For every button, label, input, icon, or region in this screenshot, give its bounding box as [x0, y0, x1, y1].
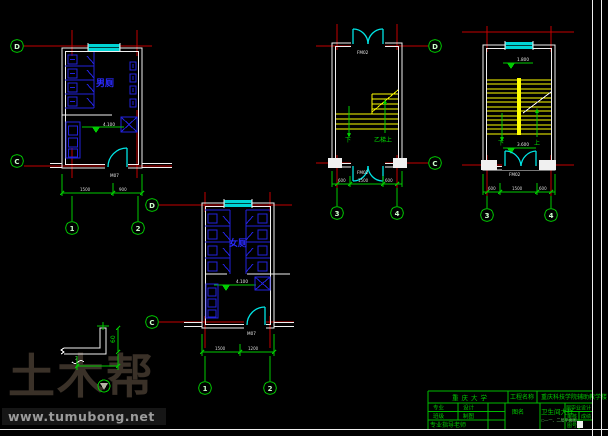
level-value: 4.100	[236, 279, 248, 284]
svg-text:3: 3	[335, 210, 340, 218]
dim-value: 600	[539, 186, 547, 191]
dim-value: 1500	[215, 346, 226, 351]
dimension-lines: 1500 900	[60, 174, 144, 221]
level-value: 1.800	[517, 57, 529, 62]
up-label: 乙梯上	[374, 136, 392, 144]
svg-text:4: 4	[395, 210, 400, 218]
axis-bubble-3: 3	[481, 209, 494, 222]
stair-treads	[336, 90, 398, 129]
pilaster	[481, 160, 497, 170]
drawing-label: 图名	[512, 408, 524, 416]
dimension-lines: 600 1500 600	[483, 174, 555, 208]
squat-toilet-icon	[258, 230, 267, 239]
pilaster	[328, 158, 342, 168]
axis-bubble-2: 2	[264, 382, 277, 395]
right-top-cell: 届毕业设计	[566, 405, 591, 412]
door-bottom-label: FM02	[357, 170, 369, 175]
grid-lines-red	[316, 24, 428, 206]
break-mark	[61, 348, 64, 354]
svg-text:2: 2	[268, 385, 273, 393]
basin-icon	[208, 299, 216, 307]
squat-toilet-icon	[208, 214, 217, 223]
axis-bubble-3: 3	[331, 207, 344, 220]
field-class: 班级	[433, 412, 445, 420]
squat-toilet-icon	[208, 230, 217, 239]
door-bottom-label: FM02	[509, 172, 521, 177]
right-mid-cell-2: 成绩	[581, 413, 591, 420]
dimension-lines: 600 1500 600	[332, 171, 402, 206]
mop-pool-icon	[255, 277, 270, 290]
level-value: 4.100	[103, 122, 115, 127]
drawing-svg: 4.100 男厕 M07 1500 900	[0, 0, 608, 436]
level-marker: 4.100	[82, 122, 124, 133]
field-draft: 制图	[463, 412, 475, 420]
dimension-lines: 1500 1200	[200, 334, 276, 381]
door-label: M07	[247, 331, 256, 336]
squat-toilet-icon	[258, 246, 267, 255]
axis-bubble-2: 2	[132, 222, 145, 235]
grid-lines-red	[24, 30, 172, 178]
level-marker-top: 1.800	[503, 57, 533, 69]
plan-male-toilet: 4.100 男厕 M07 1500 900	[11, 30, 172, 234]
sheet-frame	[0, 0, 608, 436]
toilet-stalls-right	[246, 210, 270, 274]
up-label: 上	[534, 139, 540, 147]
down-label: 下	[498, 140, 504, 147]
basin-icon	[208, 288, 216, 296]
cursor-block	[577, 421, 583, 428]
axis-bubble-d: D	[429, 40, 442, 53]
dim-value: 1500	[80, 187, 91, 192]
svg-text:1: 1	[70, 225, 75, 233]
elevation-marker	[98, 380, 110, 392]
axis-bubble-1: 1	[66, 222, 79, 235]
wash-basins	[66, 122, 80, 158]
mop-pool-icon	[121, 117, 137, 132]
squat-toilet-icon	[208, 246, 217, 255]
field-design: 设计	[463, 404, 475, 412]
svg-text:C: C	[149, 319, 154, 327]
basin-icon	[69, 138, 78, 147]
right-mid-cell-1: 审核	[567, 413, 577, 420]
field-major: 专业	[433, 404, 445, 412]
plan-stair-mid: 下 乙梯上 FM02 FM02	[316, 24, 441, 219]
room-label: 女厕	[229, 237, 247, 249]
dim-value: 1500	[512, 186, 523, 191]
door-top-label: FM02	[357, 50, 369, 55]
detail-dimensions: 60	[75, 322, 120, 370]
school-name: 重庆大学	[452, 393, 490, 402]
squiggle	[72, 361, 84, 364]
door-label: M07	[110, 173, 119, 178]
svg-text:3: 3	[485, 212, 490, 220]
svg-text:4: 4	[549, 212, 554, 220]
walls	[184, 203, 294, 329]
svg-text:D: D	[14, 43, 20, 51]
dim-value: 1500	[358, 178, 369, 183]
svg-text:C: C	[432, 160, 437, 168]
right-bottom-cell: 图号	[567, 423, 577, 429]
dim-value: 600	[488, 186, 496, 191]
basin-icon	[69, 149, 78, 157]
title-block: 重庆大学 工程名称 重庆科技学院辅助教学楼 专业 设计 班级 制图 专业指导老师…	[428, 391, 607, 429]
wall-section-detail: 3 60	[61, 322, 120, 392]
axis-bubble-4: 4	[545, 209, 558, 222]
window-icon	[88, 43, 120, 52]
down-label: 下	[345, 137, 351, 144]
wash-basins	[206, 284, 218, 318]
basin-icon	[208, 310, 216, 317]
project-name: 重庆科技学院辅助教学楼	[541, 393, 607, 401]
svg-text:1: 1	[203, 385, 208, 393]
axis-bubble-c: C	[146, 316, 159, 329]
axis-bubble-c: C	[429, 157, 442, 170]
stair-treads	[487, 78, 551, 135]
toilet-stalls	[65, 52, 94, 108]
axis-bubble-d: D	[11, 40, 24, 53]
stair-direction-arrows: 下 乙梯上	[345, 99, 392, 144]
squat-toilet-icon	[258, 262, 267, 271]
svg-text:2: 2	[136, 225, 141, 233]
dim-value: 1200	[248, 346, 259, 351]
svg-text:D: D	[432, 43, 438, 51]
dim-value: 900	[119, 187, 127, 192]
window-icon	[505, 41, 533, 50]
stair-railing	[517, 78, 521, 135]
axis-bubble-d: D	[146, 199, 159, 212]
room-label: 男厕	[96, 78, 114, 89]
axis-bubble-1: 1	[199, 382, 212, 395]
squat-toilet-icon	[208, 262, 217, 271]
plan-female-toilet: 女厕 4.100 M07	[146, 192, 294, 394]
dim-value: 600	[338, 178, 346, 183]
pilaster	[539, 160, 556, 170]
dim-value: 60	[110, 335, 117, 343]
basin-icon	[69, 126, 78, 135]
pilaster	[393, 158, 407, 168]
squat-toilet-icon	[258, 214, 267, 223]
toilet-stalls-left	[205, 210, 230, 274]
svg-text:D: D	[149, 202, 155, 210]
plan-stair-right: 1.800 3.600 下 上 FM02	[462, 26, 574, 221]
svg-text:C: C	[14, 158, 19, 166]
dim-value: 600	[385, 178, 393, 183]
axis-bubble-c: C	[11, 155, 24, 168]
level-value: 3.600	[517, 142, 529, 147]
level-marker: 4.100	[214, 279, 256, 291]
axis-bubble-4: 4	[391, 207, 404, 220]
cad-canvas: 土木帮 www.tumubong.net	[0, 0, 608, 436]
urinals	[130, 62, 136, 107]
project-label: 工程名称	[510, 393, 534, 401]
window-icon	[224, 199, 252, 208]
field-advisor: 专业指导老师	[430, 421, 466, 429]
